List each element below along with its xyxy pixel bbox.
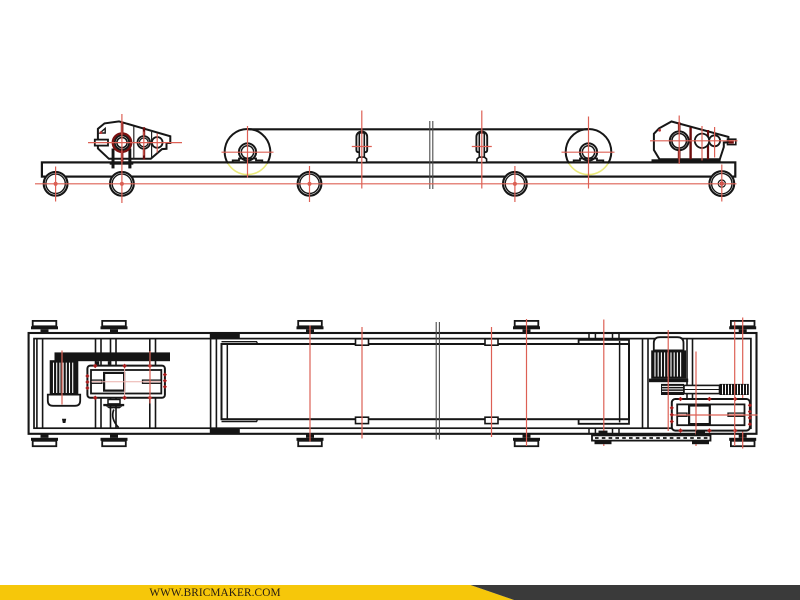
svg-text:WWW.BRICMAKER.COM: WWW.BRICMAKER.COM xyxy=(149,587,280,599)
